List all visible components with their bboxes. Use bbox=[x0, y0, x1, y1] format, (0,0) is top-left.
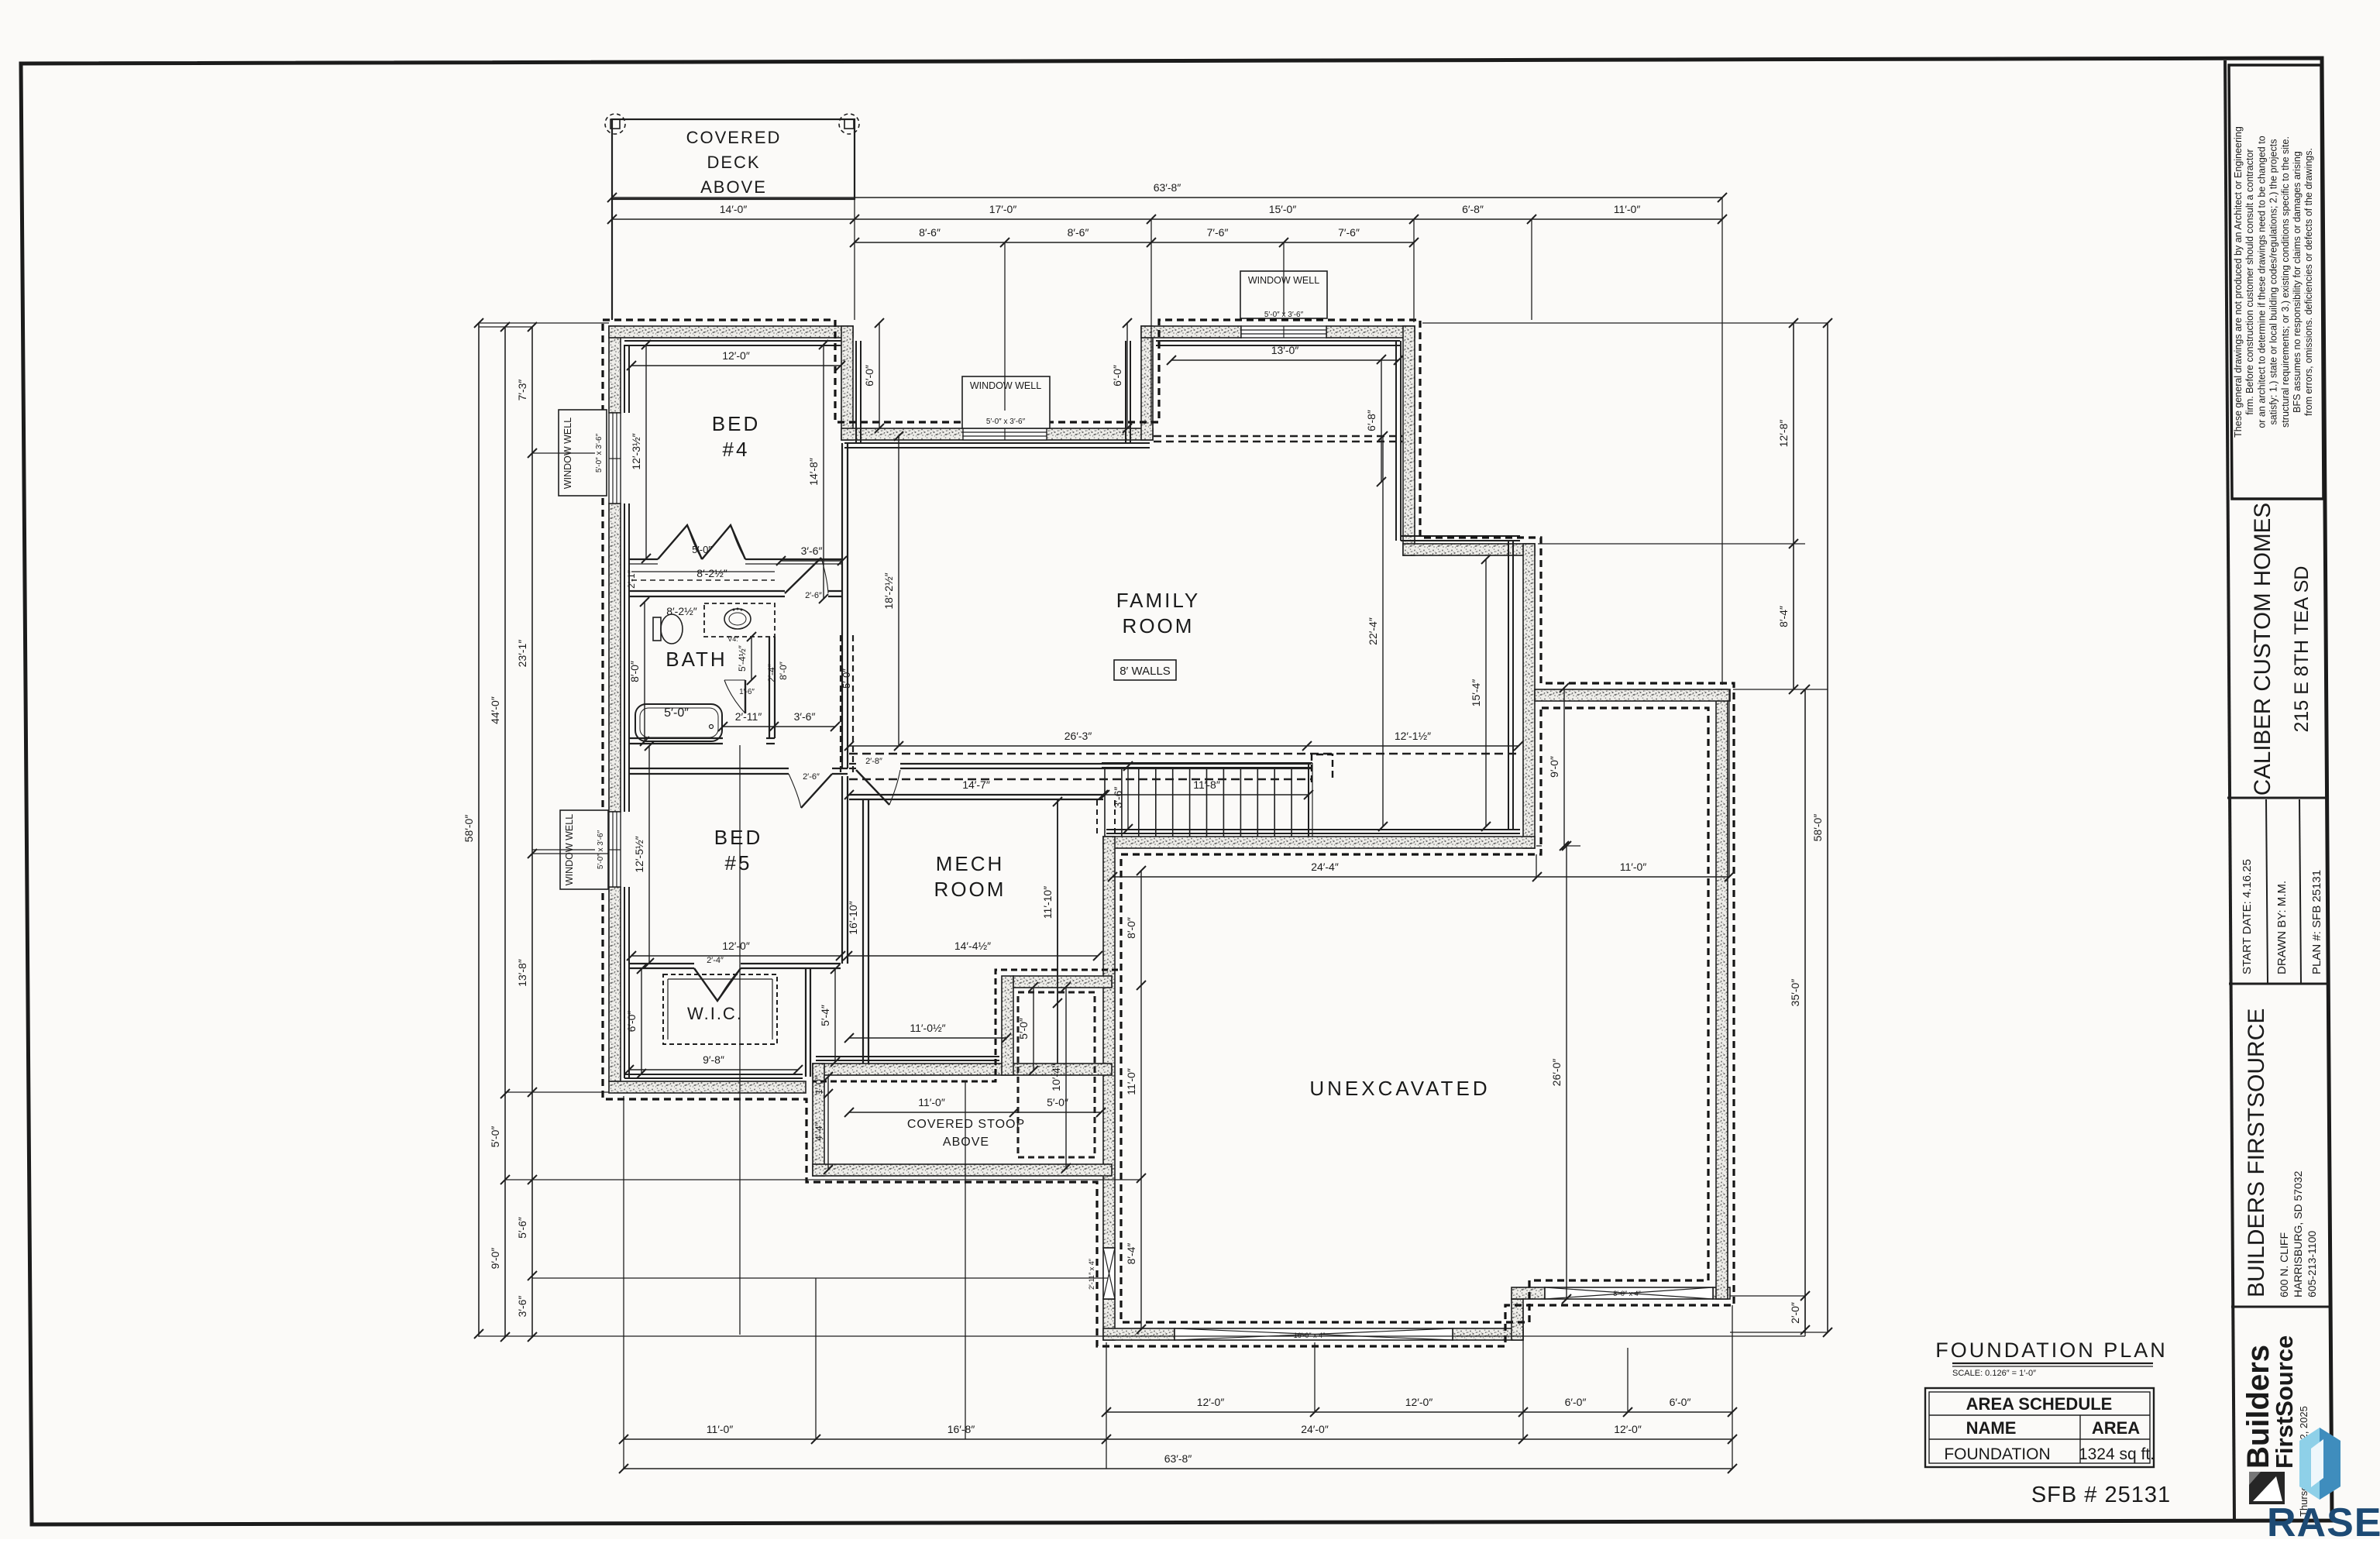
svg-text:START DATE: 4.16.25: START DATE: 4.16.25 bbox=[2241, 859, 2254, 974]
svg-text:ABOVE: ABOVE bbox=[700, 177, 767, 197]
svg-text:BUILDERS FIRSTSOURCE: BUILDERS FIRSTSOURCE bbox=[2244, 1009, 2269, 1297]
svg-text:7′-3″: 7′-3″ bbox=[516, 380, 528, 401]
svg-text:63′-8″: 63′-8″ bbox=[1164, 1452, 1192, 1465]
svg-text:15′-0″: 15′-0″ bbox=[1269, 203, 1297, 215]
svg-text:11′-0″: 11′-0″ bbox=[1614, 203, 1641, 215]
svg-text:PLAN #: SFB 25131: PLAN #: SFB 25131 bbox=[2310, 870, 2323, 974]
svg-text:1′-6″: 1′-6″ bbox=[739, 688, 755, 696]
svg-text:12′-8″: 12′-8″ bbox=[1777, 420, 1790, 448]
svg-text:10′-4″: 10′-4″ bbox=[1050, 1064, 1062, 1091]
svg-text:UNEXCAVATED: UNEXCAVATED bbox=[1309, 1077, 1490, 1100]
svg-text:RASE: RASE bbox=[2267, 1500, 2380, 1539]
svg-text:8′-0″: 8′-0″ bbox=[778, 661, 789, 680]
svg-text:5′-0″: 5′-0″ bbox=[664, 706, 689, 720]
svg-text:5′-0″ x 3′-6″: 5′-0″ x 3′-6″ bbox=[595, 433, 604, 473]
svg-text:1′-0″: 1′-0″ bbox=[813, 1075, 824, 1095]
svg-text:HARRISBURG, SD 57032: HARRISBURG, SD 57032 bbox=[2292, 1170, 2304, 1297]
svg-text:9′-0″: 9′-0″ bbox=[489, 1248, 501, 1270]
svg-text:6′-8″: 6′-8″ bbox=[1365, 410, 1377, 431]
svg-text:17′-0″: 17′-0″ bbox=[989, 203, 1017, 215]
svg-text:22′-4″: 22′-4″ bbox=[1367, 617, 1379, 645]
svg-text:12′-5½″: 12′-5½″ bbox=[633, 836, 645, 872]
svg-text:3′-6″: 3′-6″ bbox=[1112, 787, 1124, 809]
svg-text:58′-0″: 58′-0″ bbox=[1811, 814, 1824, 842]
svg-text:DECK: DECK bbox=[707, 153, 760, 172]
svg-text:satisfy: 1.) state or local b: satisfy: 1.) state or local building cod… bbox=[2268, 139, 2279, 425]
svg-text:11′-0½″: 11′-0½″ bbox=[910, 1022, 945, 1034]
svg-text:7′-6″: 7′-6″ bbox=[1338, 226, 1360, 239]
svg-text:8′-2½″: 8′-2½″ bbox=[696, 567, 727, 579]
svg-text:FirstSource: FirstSource bbox=[2271, 1335, 2298, 1469]
svg-text:215 E 8TH TEA SD: 215 E 8TH TEA SD bbox=[2291, 566, 2313, 733]
svg-text:9′-0″: 9′-0″ bbox=[1548, 756, 1560, 778]
svg-text:FOUNDATION PLAN: FOUNDATION PLAN bbox=[1935, 1339, 2168, 1362]
svg-text:8′-0″: 8′-0″ bbox=[628, 661, 641, 682]
svg-text:ROOM: ROOM bbox=[934, 878, 1006, 901]
svg-text:2′-11″ x 4″: 2′-11″ x 4″ bbox=[1088, 1258, 1095, 1290]
svg-text:2′-4″: 2′-4″ bbox=[766, 663, 777, 682]
svg-text:5′-0″ x 3′-6″: 5′-0″ x 3′-6″ bbox=[986, 418, 1026, 426]
svg-text:26′-0″: 26′-0″ bbox=[1550, 1059, 1563, 1087]
svg-text:6′-0″: 6′-0″ bbox=[1111, 365, 1123, 387]
svg-text:8′-0″ x 4″: 8′-0″ x 4″ bbox=[1613, 1290, 1641, 1297]
svg-text:CALIBER CUSTOM HOMES: CALIBER CUSTOM HOMES bbox=[2250, 503, 2275, 796]
svg-text:12′-0″: 12′-0″ bbox=[722, 349, 750, 362]
svg-text:SCALE: 0.126″ = 1′-0″: SCALE: 0.126″ = 1′-0″ bbox=[1952, 1369, 2036, 1378]
svg-text:ABOVE: ABOVE bbox=[943, 1136, 989, 1149]
svg-text:13′-8″: 13′-8″ bbox=[516, 959, 528, 987]
svg-text:14′-4½″: 14′-4½″ bbox=[954, 940, 991, 952]
svg-text:COVERED: COVERED bbox=[686, 128, 782, 147]
svg-text:#5: #5 bbox=[725, 851, 752, 875]
svg-text:2′-8″: 2′-8″ bbox=[865, 757, 882, 766]
svg-text:35′-0″: 35′-0″ bbox=[1789, 979, 1801, 1007]
svg-text:5′-0″: 5′-0″ bbox=[1047, 1096, 1068, 1108]
svg-text:BED: BED bbox=[712, 412, 760, 435]
svg-text:5′-0″: 5′-0″ bbox=[692, 544, 712, 555]
svg-text:2′-6″: 2′-6″ bbox=[803, 772, 820, 782]
svg-text:5′-0″: 5′-0″ bbox=[489, 1126, 501, 1148]
svg-text:7′-6″: 7′-6″ bbox=[1207, 226, 1229, 239]
svg-text:5′-4½″: 5′-4½″ bbox=[737, 644, 748, 672]
svg-text:8′ WALLS: 8′ WALLS bbox=[1119, 665, 1171, 678]
svg-text:16′-8″: 16′-8″ bbox=[948, 1423, 975, 1435]
svg-text:AREA: AREA bbox=[2092, 1418, 2140, 1438]
svg-text:8′-6″: 8′-6″ bbox=[919, 226, 941, 239]
svg-text:11′-8″: 11′-8″ bbox=[1193, 778, 1220, 791]
svg-text:3′-6″: 3′-6″ bbox=[516, 1296, 528, 1318]
svg-text:16′-10″: 16′-10″ bbox=[847, 901, 859, 934]
svg-text:AREA SCHEDULE: AREA SCHEDULE bbox=[1966, 1394, 2113, 1414]
svg-text:5′-6″: 5′-6″ bbox=[516, 1217, 528, 1239]
svg-text:18′-2½″: 18′-2½″ bbox=[882, 572, 895, 609]
svg-text:11′-0″: 11′-0″ bbox=[1620, 861, 1647, 873]
svg-text:600 N. CLIFF: 600 N. CLIFF bbox=[2278, 1232, 2290, 1297]
svg-text:ROOM: ROOM bbox=[1123, 614, 1195, 637]
svg-text:14′-7″: 14′-7″ bbox=[962, 778, 990, 791]
svg-text:BED: BED bbox=[714, 826, 762, 849]
svg-text:6′-0″: 6′-0″ bbox=[1565, 1396, 1587, 1408]
svg-text:5′-0″: 5′-0″ bbox=[841, 668, 852, 689]
svg-text:14′-0″: 14′-0″ bbox=[720, 203, 748, 215]
svg-text:16′-0″ x 4″: 16′-0″ x 4″ bbox=[1294, 1332, 1326, 1339]
svg-text:DRAWN BY: M.M.: DRAWN BY: M.M. bbox=[2275, 881, 2289, 974]
svg-text:8′-2½″: 8′-2½″ bbox=[666, 605, 697, 617]
svg-text:4′-4″: 4′-4″ bbox=[813, 1122, 824, 1141]
svg-text:8′-6″: 8′-6″ bbox=[1068, 226, 1089, 239]
svg-text:FOUNDATION: FOUNDATION bbox=[1944, 1445, 2050, 1463]
svg-text:12′-0″: 12′-0″ bbox=[1614, 1423, 1642, 1435]
svg-text:or an architect to determine i: or an architect to determine if these dr… bbox=[2256, 136, 2267, 428]
svg-text:W.I.C.: W.I.C. bbox=[687, 1004, 743, 1023]
svg-text:8′-0″: 8′-0″ bbox=[1125, 917, 1137, 939]
svg-text:5′-0″ x 3′-6″: 5′-0″ x 3′-6″ bbox=[597, 830, 605, 869]
svg-text:12′-0″: 12′-0″ bbox=[1197, 1396, 1225, 1408]
svg-text:14′-8″: 14′-8″ bbox=[807, 458, 820, 486]
svg-text:58′-0″: 58′-0″ bbox=[463, 815, 475, 843]
svg-text:WINDOW WELL: WINDOW WELL bbox=[970, 380, 1041, 391]
svg-text:8′-4″: 8′-4″ bbox=[1777, 606, 1790, 627]
svg-text:1324 sq ft.: 1324 sq ft. bbox=[2079, 1445, 2155, 1463]
svg-text:6′-0″: 6′-0″ bbox=[625, 1011, 638, 1033]
svg-text:15′-4″: 15′-4″ bbox=[1470, 679, 1482, 707]
svg-text:2′-0″: 2′-0″ bbox=[1789, 1302, 1801, 1324]
svg-text:3′-6″: 3′-6″ bbox=[794, 710, 816, 723]
svg-text:11′-0″: 11′-0″ bbox=[918, 1096, 945, 1108]
svg-text:44′-0″: 44′-0″ bbox=[489, 696, 501, 724]
svg-text:24′-0″: 24′-0″ bbox=[1301, 1423, 1329, 1435]
svg-text:12′-0″: 12′-0″ bbox=[722, 940, 750, 952]
svg-text:V4:: V4: bbox=[727, 635, 738, 643]
svg-text:9′-8″: 9′-8″ bbox=[703, 1053, 724, 1066]
svg-text:2′-4″: 2′-4″ bbox=[707, 956, 724, 965]
svg-text:structural requirements; or 3: structural requirements; or 3.) existing… bbox=[2280, 136, 2291, 428]
svg-text:23′-1″: 23′-1″ bbox=[516, 640, 528, 668]
svg-text:605-213-1100: 605-213-1100 bbox=[2306, 1231, 2318, 1297]
svg-text:6′-0″: 6′-0″ bbox=[1670, 1396, 1691, 1408]
svg-text:These general drawings are not: These general drawings are not produced … bbox=[2233, 126, 2244, 438]
svg-text:NAME: NAME bbox=[1966, 1418, 2017, 1438]
svg-text:2′-11″: 2′-11″ bbox=[735, 710, 762, 723]
svg-text:12′-1½″: 12′-1½″ bbox=[1395, 730, 1431, 742]
svg-text:MECH: MECH bbox=[936, 852, 1005, 875]
svg-text:BFS assumes no responsibility: BFS assumes no responsibility for claims… bbox=[2292, 151, 2303, 413]
svg-text:11′-0″: 11′-0″ bbox=[1125, 1068, 1137, 1095]
svg-text:SFB # 25131: SFB # 25131 bbox=[2031, 1483, 2171, 1507]
svg-text:5′-0″: 5′-0″ bbox=[1017, 1018, 1030, 1040]
svg-text:COVERED STOOP: COVERED STOOP bbox=[907, 1118, 1025, 1131]
svg-text:5′-4″: 5′-4″ bbox=[819, 1005, 831, 1026]
svg-text:12′-0″: 12′-0″ bbox=[1405, 1396, 1433, 1408]
svg-text:2′-6″: 2′-6″ bbox=[805, 591, 822, 600]
svg-text:13′-0″: 13′-0″ bbox=[1271, 344, 1299, 356]
svg-text:11′-10″: 11′-10″ bbox=[1041, 886, 1054, 919]
svg-text:6′-0″: 6′-0″ bbox=[863, 365, 875, 387]
svg-text:from errors, omissions. defici: from errors, omissions. deficiencies or … bbox=[2303, 148, 2314, 416]
svg-text:3′-6″: 3′-6″ bbox=[801, 545, 823, 557]
svg-text:2′-1″: 2′-1″ bbox=[626, 569, 637, 589]
svg-text:FAMILY: FAMILY bbox=[1116, 589, 1201, 612]
svg-text:8′-4″: 8′-4″ bbox=[1125, 1243, 1137, 1265]
svg-text:24′-4″: 24′-4″ bbox=[1311, 861, 1339, 873]
svg-text:63′-8″: 63′-8″ bbox=[1154, 181, 1181, 194]
svg-text:26′-3″: 26′-3″ bbox=[1064, 730, 1092, 742]
svg-text:6′-8″: 6′-8″ bbox=[1462, 203, 1484, 215]
svg-text:#4: #4 bbox=[723, 438, 750, 461]
svg-text:BATH: BATH bbox=[666, 648, 727, 671]
svg-text:11′-0″: 11′-0″ bbox=[707, 1423, 734, 1435]
svg-text:firm. Before construction cus: firm. Before construction customer shoul… bbox=[2244, 149, 2255, 414]
svg-text:12′-3½″: 12′-3½″ bbox=[630, 433, 642, 469]
